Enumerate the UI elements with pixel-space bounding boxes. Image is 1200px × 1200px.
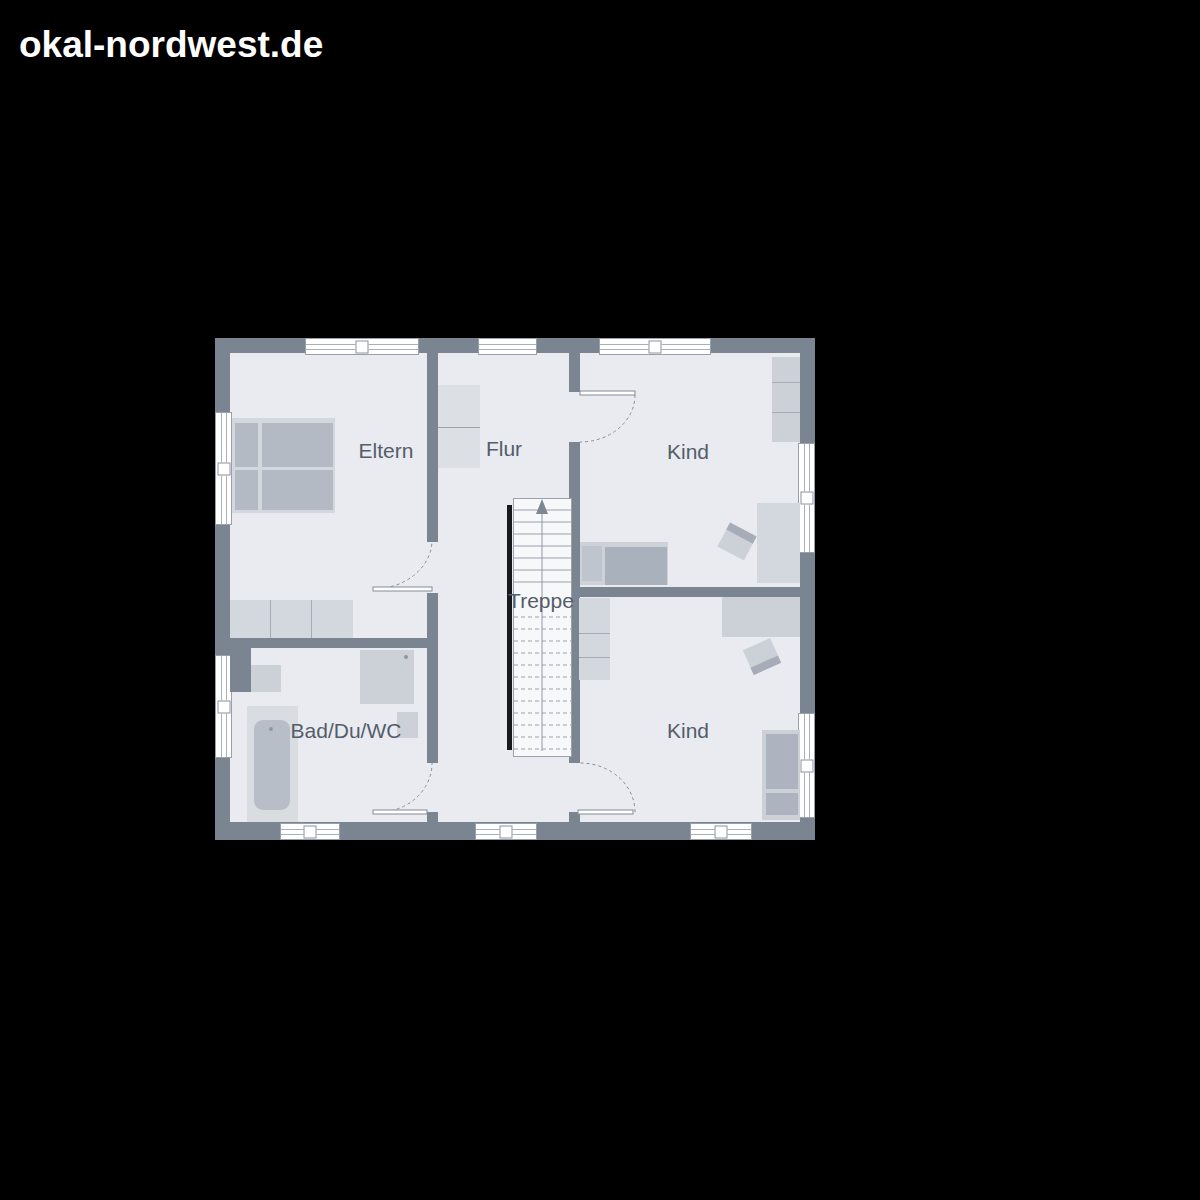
window-bottom-middle bbox=[475, 823, 537, 840]
kind-bottom-bed-mattress bbox=[766, 734, 798, 789]
window-top-right bbox=[599, 338, 711, 355]
window-handle bbox=[800, 492, 813, 505]
kind-top-bed-pillow bbox=[582, 546, 602, 581]
site-title: okal-nordwest.de bbox=[19, 24, 323, 66]
wall-eltern-bad bbox=[230, 638, 438, 648]
eltern-wardrobe bbox=[230, 600, 353, 638]
floor-plan: Eltern Flur Kind Treppe Bad/Du/WC Kind bbox=[215, 338, 815, 840]
wall-bad-right bbox=[427, 648, 438, 763]
page: { "page": {"background": "#000000"}, "he… bbox=[0, 0, 1200, 1200]
window-handle bbox=[356, 340, 369, 353]
room-label-kind-top: Kind bbox=[667, 440, 709, 464]
wall-stub-kind-door bbox=[569, 812, 580, 822]
kind-top-bed-mattress bbox=[605, 547, 667, 585]
wardrobe-divider bbox=[772, 382, 800, 383]
window-bottom-right bbox=[690, 823, 752, 840]
wall-eltern-flur bbox=[427, 353, 438, 542]
room-label-treppe: Treppe bbox=[508, 589, 574, 613]
window-handle bbox=[649, 340, 662, 353]
bathtub-faucet bbox=[269, 727, 273, 731]
flur-cabinet bbox=[438, 385, 480, 468]
wall-flur-kind-top bbox=[569, 353, 580, 392]
eltern-bed-pillow-left bbox=[235, 423, 258, 467]
washbasin bbox=[251, 665, 281, 692]
kind-top-desk bbox=[757, 503, 800, 583]
room-label-flur: Flur bbox=[486, 437, 522, 461]
wall-stub-bad-door bbox=[427, 812, 438, 822]
kind-bottom-bed-foot bbox=[766, 793, 798, 815]
wardrobe-divider bbox=[311, 600, 312, 638]
wardrobe-divider bbox=[270, 600, 271, 638]
eltern-bed-mattress-bottom bbox=[262, 470, 333, 510]
wall-kind-kind bbox=[580, 587, 800, 597]
window-handle bbox=[500, 825, 513, 838]
cabinet-divider bbox=[438, 427, 480, 428]
kind-bottom-sideboard bbox=[579, 598, 610, 680]
shower-head bbox=[404, 655, 408, 659]
window-right-upper bbox=[798, 443, 815, 553]
eltern-bed-mattress-top bbox=[262, 423, 333, 467]
room-label-eltern: Eltern bbox=[359, 439, 414, 463]
utility-shaft bbox=[230, 648, 251, 692]
window-handle bbox=[217, 700, 230, 713]
window-top-middle bbox=[478, 338, 537, 355]
wall-eltern-flur-lower bbox=[427, 593, 438, 638]
window-handle bbox=[304, 825, 317, 838]
window-left-upper bbox=[215, 412, 232, 525]
window-handle bbox=[217, 462, 230, 475]
room-label-bad: Bad/Du/WC bbox=[291, 719, 402, 743]
kind-top-wardrobe bbox=[772, 357, 800, 442]
window-handle bbox=[800, 759, 813, 772]
sideboard-divider bbox=[579, 657, 610, 658]
window-bottom-left bbox=[280, 823, 340, 840]
wardrobe-divider bbox=[772, 412, 800, 413]
room-label-kind-bottom: Kind bbox=[667, 719, 709, 743]
sideboard-divider bbox=[579, 633, 610, 634]
bathtub-inner bbox=[254, 720, 290, 810]
window-top-left bbox=[305, 338, 419, 355]
window-handle bbox=[715, 825, 728, 838]
eltern-bed-pillow-left2 bbox=[235, 470, 258, 510]
stairs bbox=[513, 498, 572, 757]
kind-bottom-wardrobe bbox=[722, 597, 800, 637]
window-right-lower bbox=[798, 713, 815, 818]
